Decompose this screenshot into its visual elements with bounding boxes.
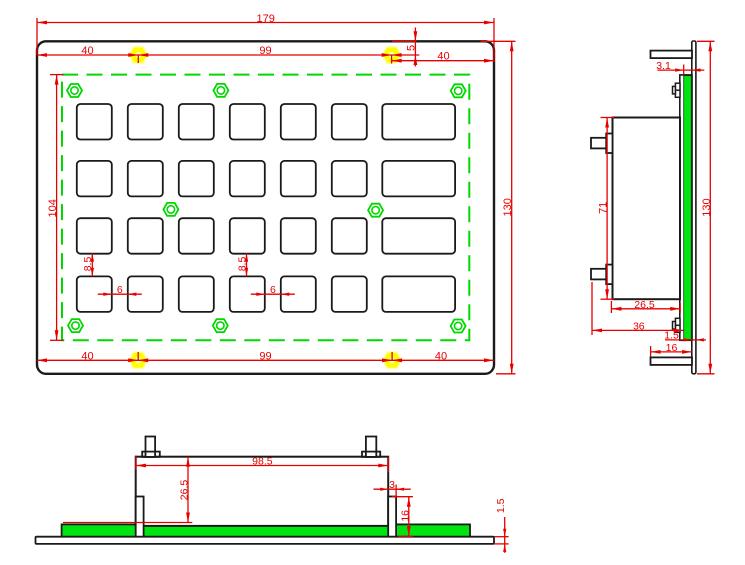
svg-text:26.5: 26.5	[179, 480, 191, 501]
svg-text:40: 40	[81, 45, 93, 57]
svg-text:179: 179	[257, 13, 275, 25]
svg-text:16: 16	[399, 510, 411, 522]
svg-text:130: 130	[502, 198, 514, 216]
svg-text:8.5: 8.5	[82, 257, 94, 272]
svg-text:99: 99	[259, 350, 271, 362]
svg-text:8.5: 8.5	[236, 257, 248, 272]
svg-text:5: 5	[406, 45, 418, 51]
svg-text:130: 130	[701, 198, 713, 216]
svg-text:40: 40	[81, 350, 93, 362]
svg-text:6: 6	[117, 284, 123, 296]
svg-text:26.5: 26.5	[634, 299, 655, 311]
svg-text:1.5: 1.5	[495, 498, 507, 513]
svg-text:1.5: 1.5	[664, 329, 679, 341]
svg-text:99: 99	[259, 45, 271, 57]
svg-text:3: 3	[389, 479, 395, 491]
svg-text:104: 104	[47, 199, 59, 217]
svg-text:3.1: 3.1	[656, 60, 671, 72]
svg-text:40: 40	[437, 51, 449, 63]
svg-text:16: 16	[666, 342, 678, 354]
svg-text:36: 36	[633, 320, 645, 332]
svg-text:40: 40	[435, 350, 447, 362]
svg-text:6: 6	[270, 284, 276, 296]
svg-text:71: 71	[598, 202, 610, 214]
svg-text:98.5: 98.5	[252, 455, 273, 467]
